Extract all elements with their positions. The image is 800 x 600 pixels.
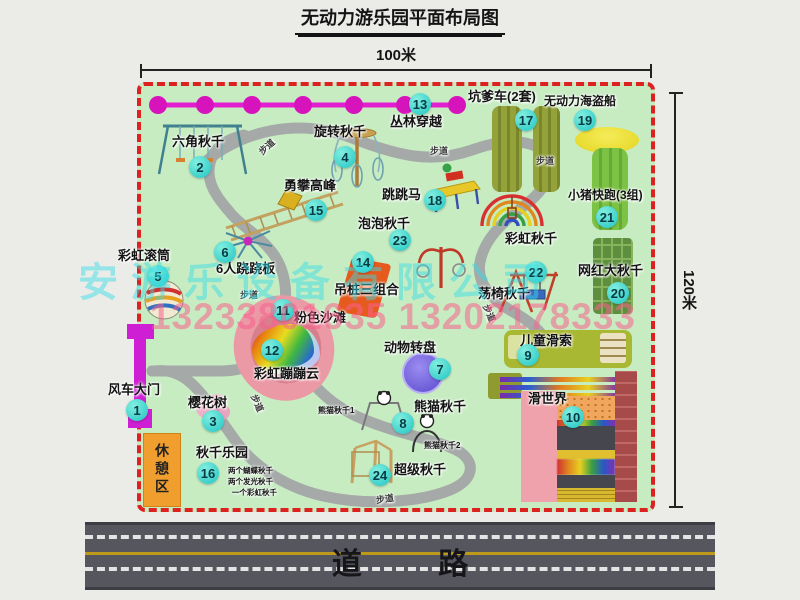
label-rainbow-swing: 彩虹秋千 xyxy=(505,232,557,247)
marker-2: 2 xyxy=(189,156,211,178)
marker-24: 24 xyxy=(369,464,391,486)
marker-12: 12 xyxy=(261,339,283,361)
label-climbing-peak: 勇攀高峰 xyxy=(284,179,336,194)
width-dimension-line xyxy=(140,69,652,71)
label-rotating-swing: 旋转秋千 xyxy=(314,125,366,140)
swing-park-note-1: 两个蝴蝶秋千 xyxy=(228,466,273,477)
layout-map-page: 无动力游乐园平面布局图 100米 120米 xyxy=(0,0,800,600)
label-jungle-crossing: 丛林穿越 xyxy=(390,115,442,130)
rest-area-shape: 休憩区 xyxy=(143,433,181,507)
label-super-swing: 超级秋千 xyxy=(394,463,446,478)
label-swing-park: 秋千乐园 xyxy=(196,446,248,461)
marker-10: 10 xyxy=(562,406,584,428)
marker-16: 16 xyxy=(197,462,219,484)
marker-7: 7 xyxy=(429,358,451,380)
label-panda-swing-1: 熊猫秋千1 xyxy=(318,406,354,415)
label-panda-swing: 熊猫秋千 xyxy=(414,400,466,415)
road-label: 道 路 xyxy=(85,539,715,583)
marker-18: 18 xyxy=(424,189,446,211)
footpath-label-2: 步道 xyxy=(430,146,448,156)
width-dimension-label: 100米 xyxy=(140,44,652,65)
marker-15: 15 xyxy=(305,199,327,221)
swing-park-note-2: 两个发光秋千 xyxy=(228,477,273,488)
marker-8: 8 xyxy=(392,412,414,434)
marker-23: 23 xyxy=(389,229,411,251)
footpath-label-3: 步道 xyxy=(536,156,554,166)
label-pit-cart: 坑爹车(2套) xyxy=(468,90,536,105)
label-animal-turntable: 动物转盘 xyxy=(384,341,436,356)
marker-3: 3 xyxy=(202,410,224,432)
pit-cart-strip-2 xyxy=(533,106,560,192)
road: 道 路 xyxy=(85,522,715,590)
label-piggy-run: 小猪快跑(3组) xyxy=(568,189,643,203)
slide-world-shape xyxy=(488,370,638,503)
marker-1: 1 xyxy=(126,399,148,421)
marker-9: 9 xyxy=(517,344,539,366)
label-slide-world: 滑世界 xyxy=(528,392,567,407)
label-jumping-horse: 跳跳马 xyxy=(382,188,421,203)
swing-park-note-3: 一个彩虹秋千 xyxy=(232,488,277,499)
page-title: 无动力游乐园平面布局图 xyxy=(0,8,800,35)
label-big-swing: 网红大秋千 xyxy=(578,264,643,279)
label-bounce-cloud: 彩虹蹦蹦云 xyxy=(254,367,319,382)
label-windmill-gate: 风车大门 xyxy=(108,383,160,398)
marker-13: 13 xyxy=(409,93,431,115)
marker-19: 19 xyxy=(574,109,596,131)
height-dimension-label: 120米 xyxy=(678,270,699,310)
marker-17: 17 xyxy=(515,109,537,131)
label-panda-swing-2: 熊猫秋千2 xyxy=(424,441,460,450)
label-pirate-ship: 无动力海盗船 xyxy=(544,95,616,109)
label-sakura-tree: 樱花树 xyxy=(188,396,227,411)
watermark-phone: 13233801635 13202178333 xyxy=(150,296,636,338)
marker-4: 4 xyxy=(334,146,356,168)
label-hexagon-swing: 六角秋千 xyxy=(172,135,224,150)
height-dimension-line xyxy=(674,92,676,508)
marker-21: 21 xyxy=(596,206,618,228)
